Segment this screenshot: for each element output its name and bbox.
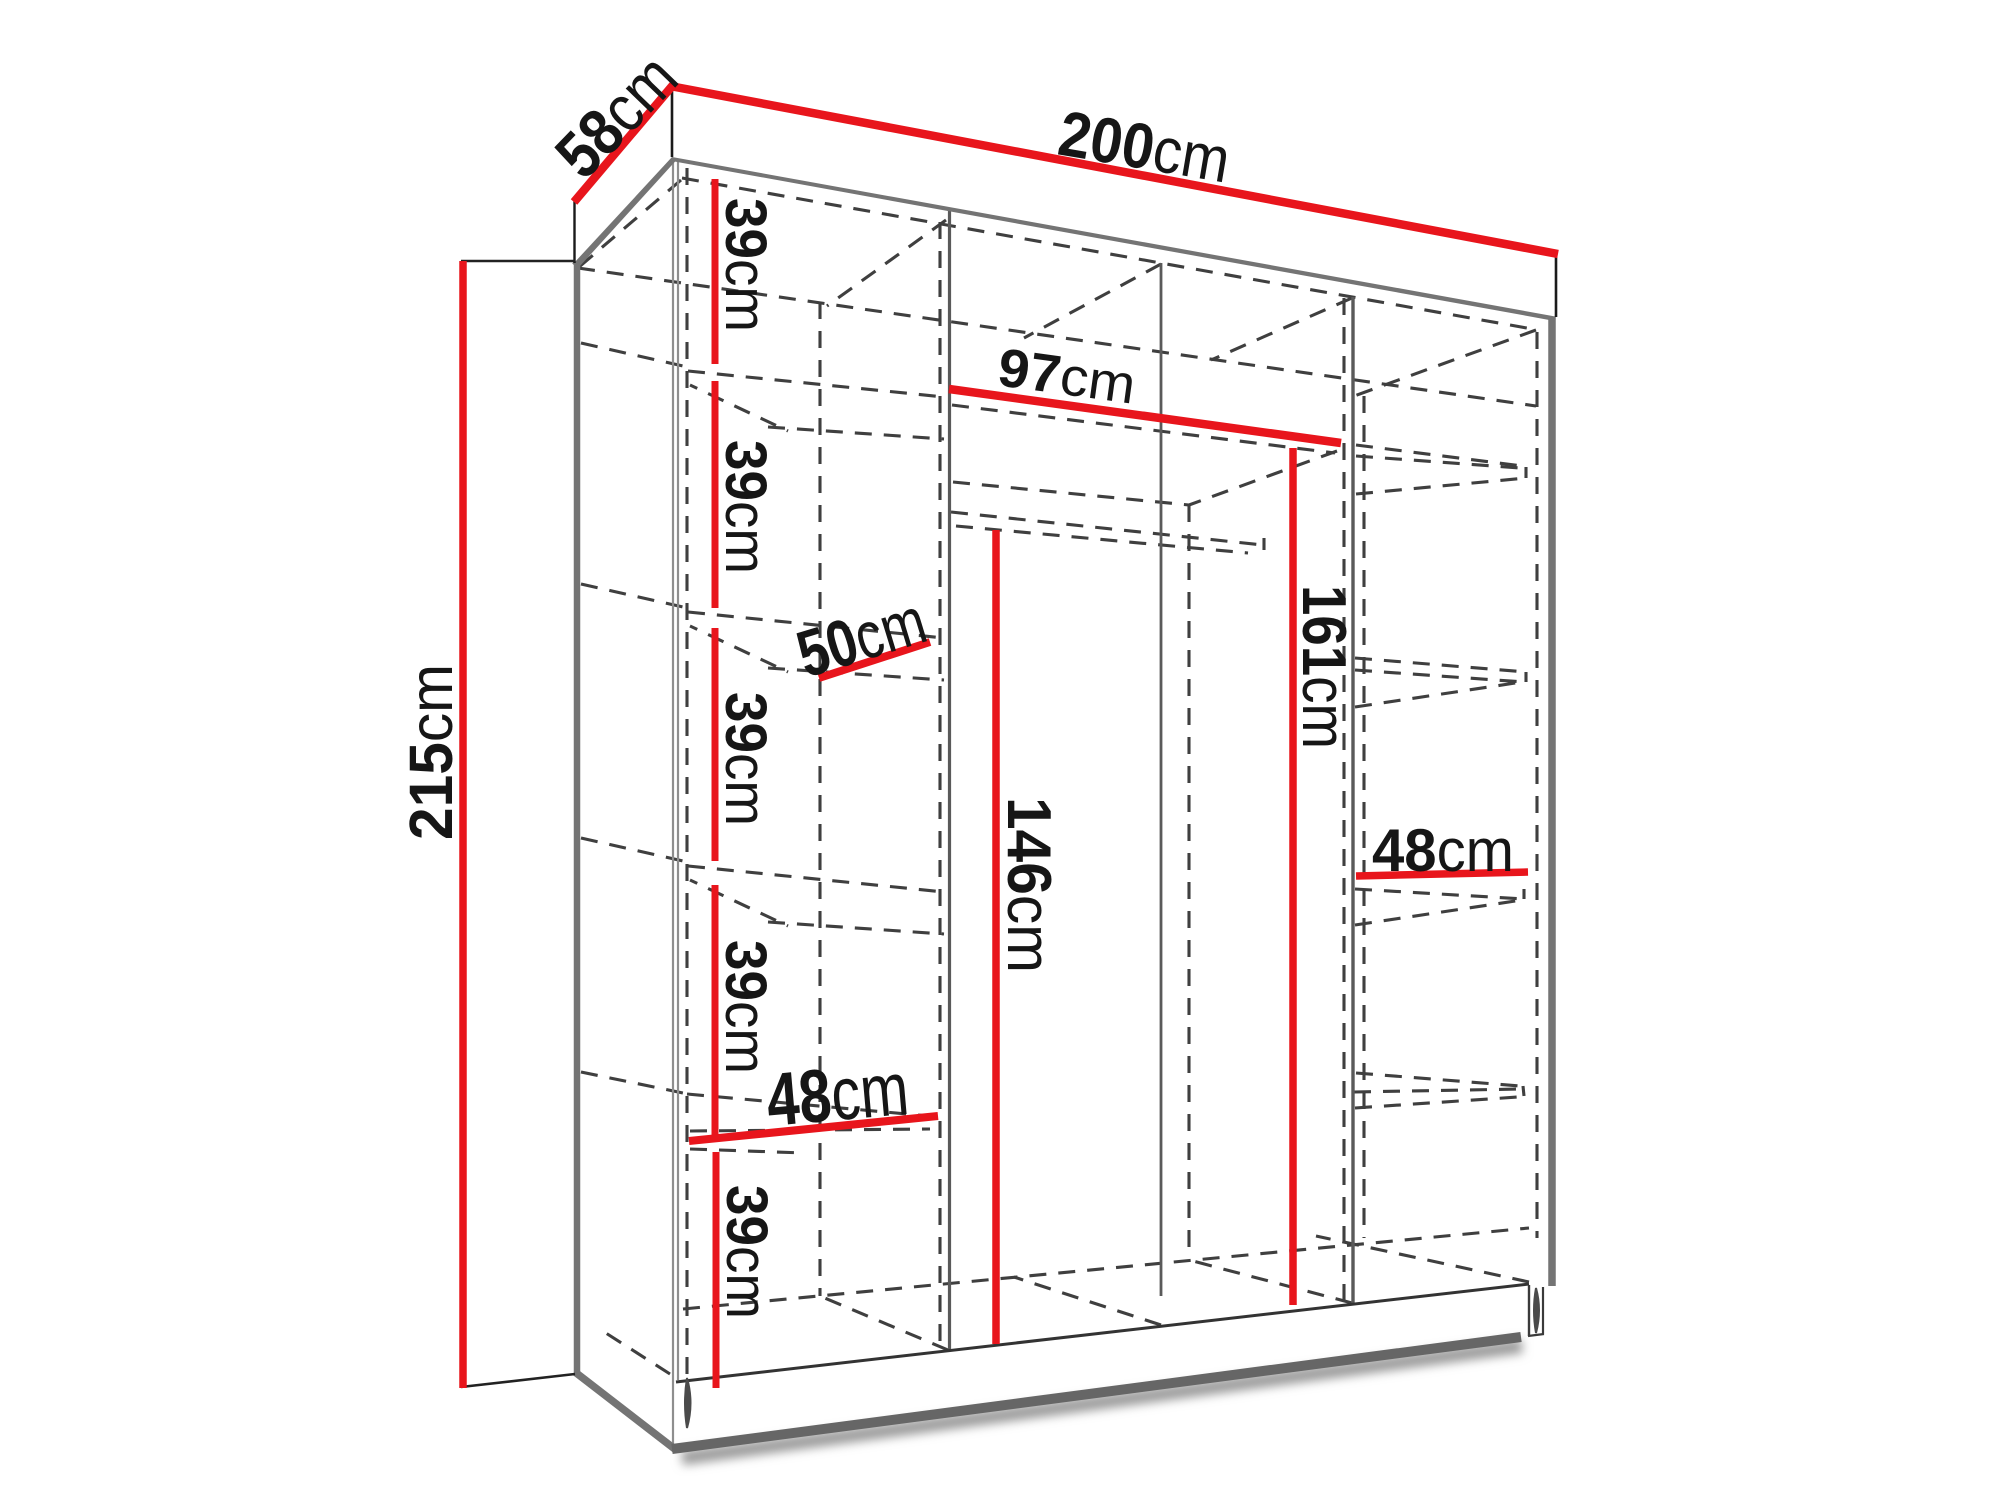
svg-text:39cm: 39cm <box>713 940 778 1074</box>
svg-text:215cm: 215cm <box>397 664 465 840</box>
svg-text:39cm: 39cm <box>713 198 778 332</box>
svg-text:146cm: 146cm <box>994 797 1063 973</box>
svg-text:39cm: 39cm <box>713 692 778 826</box>
svg-text:161cm: 161cm <box>1289 585 1358 749</box>
svg-text:39cm: 39cm <box>714 1185 779 1319</box>
svg-text:48cm: 48cm <box>1372 817 1514 884</box>
svg-text:48cm: 48cm <box>763 1046 912 1142</box>
svg-text:39cm: 39cm <box>713 440 778 574</box>
